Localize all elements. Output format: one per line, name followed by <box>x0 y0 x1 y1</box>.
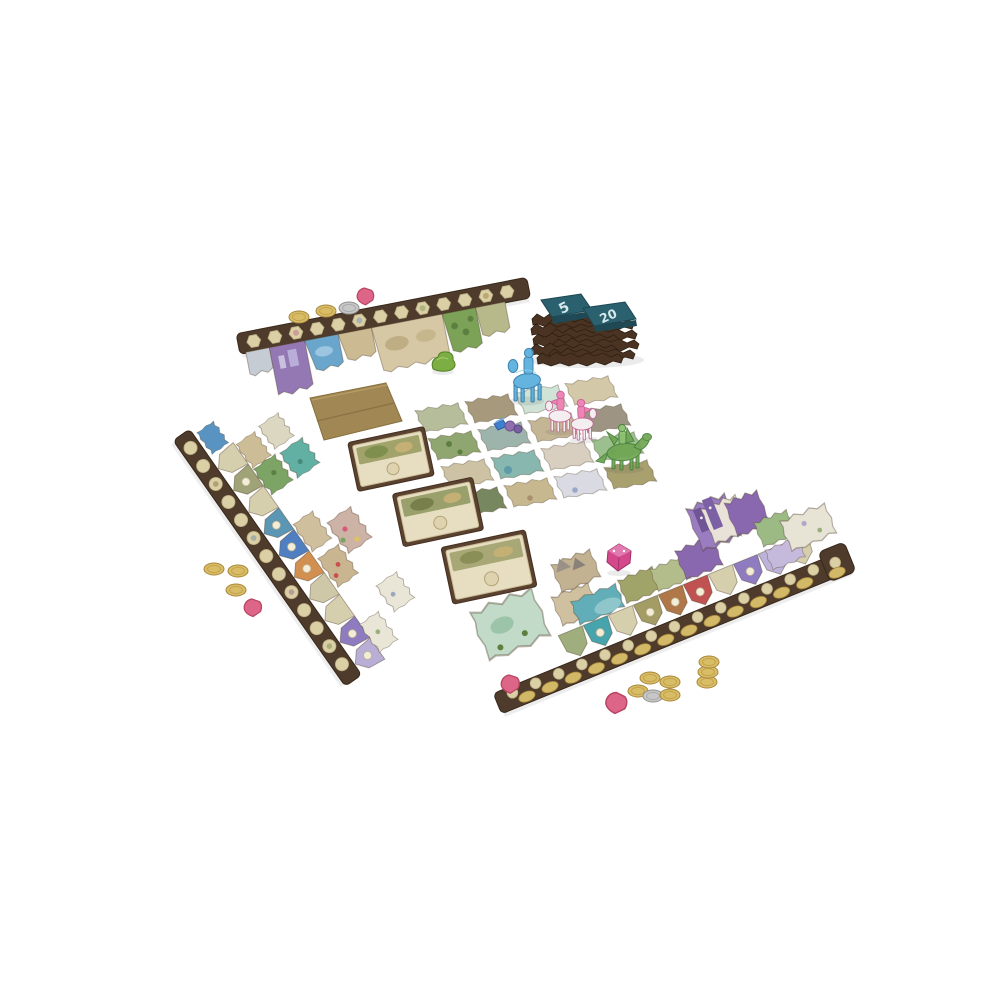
purple-token <box>514 425 522 433</box>
player-strip-top <box>236 277 540 402</box>
pink-gem <box>357 288 374 305</box>
gold-coin <box>699 656 719 668</box>
grid-tile <box>463 393 519 424</box>
gold-coin <box>204 563 224 575</box>
pink-gem <box>605 691 628 715</box>
grid-tile <box>539 440 595 471</box>
card-3 <box>441 530 537 605</box>
silver-coin <box>339 302 359 314</box>
cardboard-panel <box>310 383 402 440</box>
score-tile-stacks: 5 20 <box>528 294 644 368</box>
grid-tile <box>552 468 608 499</box>
card-2 <box>392 477 483 547</box>
crystal-die <box>607 544 631 576</box>
photo-canvas: 5 20 <box>0 0 1000 1000</box>
tokens-near-left-strip <box>204 563 262 617</box>
gold-coin-stack <box>697 656 719 688</box>
gold-coin <box>640 672 660 684</box>
player-strip-left <box>170 378 435 689</box>
gold-coin <box>228 565 248 577</box>
grid-tile <box>502 477 558 508</box>
gold-coin <box>660 689 680 701</box>
card-1 <box>348 426 435 491</box>
coin-cluster <box>628 672 680 702</box>
pink-gem <box>244 599 261 617</box>
gold-coin <box>289 311 309 323</box>
gold-coin <box>316 305 336 317</box>
grid-tile <box>426 430 482 461</box>
grid-tile <box>563 375 619 406</box>
board-game-product-photo: 5 20 <box>0 0 1000 1000</box>
terrain-tile <box>338 328 377 363</box>
grid-tile <box>489 449 545 480</box>
gold-coin <box>226 584 246 596</box>
purple-token <box>505 421 515 431</box>
terrain-tile-castle <box>269 341 314 397</box>
gold-coin <box>660 676 680 688</box>
